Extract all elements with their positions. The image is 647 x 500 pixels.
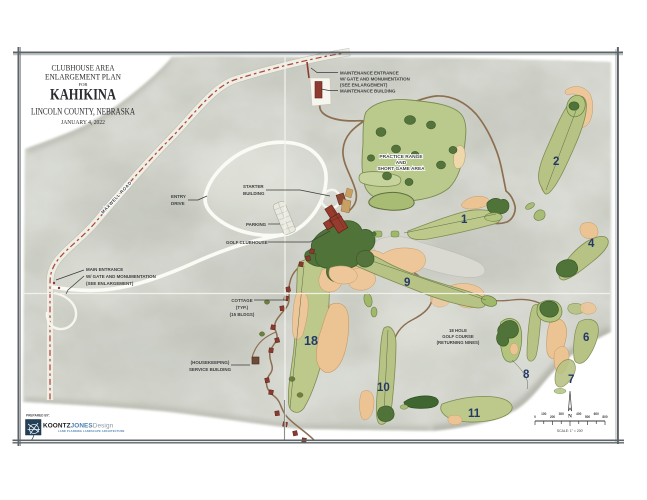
svg-text:400: 400 <box>576 412 582 416</box>
svg-text:500: 500 <box>585 415 591 419</box>
svg-text:N: N <box>568 414 572 420</box>
svg-text:MAINTENANCE BUILDING: MAINTENANCE BUILDING <box>340 89 396 94</box>
svg-text:MAIN ENTRANCE: MAIN ENTRANCE <box>86 267 123 272</box>
svg-text:(15 BLDGS): (15 BLDGS) <box>230 312 255 317</box>
svg-text:DRIVE: DRIVE <box>171 201 185 206</box>
svg-text:0: 0 <box>534 415 536 419</box>
svg-text:6: 6 <box>583 332 589 344</box>
svg-text:18 HOLE: 18 HOLE <box>449 328 467 333</box>
svg-text:SERVICE BUILDING: SERVICE BUILDING <box>189 367 232 372</box>
svg-text:PARKING: PARKING <box>246 222 267 227</box>
svg-text:(SEE ENLARGEMENT): (SEE ENLARGEMENT) <box>340 83 388 88</box>
svg-text:9: 9 <box>404 277 410 289</box>
svg-text:ENTRY: ENTRY <box>171 194 186 199</box>
svg-text:BUILDING: BUILDING <box>243 191 265 196</box>
svg-text:(HOUSEKEEPING): (HOUSEKEEPING) <box>191 360 230 365</box>
svg-text:KAHIKINA: KAHIKINA <box>50 87 117 104</box>
svg-text:600: 600 <box>594 412 600 416</box>
svg-text:7: 7 <box>568 374 574 386</box>
svg-text:(RETURNING NINES): (RETURNING NINES) <box>437 340 480 345</box>
svg-text:AND: AND <box>396 160 407 166</box>
svg-text:CLUBHOUSE AREA: CLUBHOUSE AREA <box>52 64 115 73</box>
svg-text:JANUARY 4, 2022: JANUARY 4, 2022 <box>61 120 105 126</box>
svg-text:11: 11 <box>468 408 481 420</box>
svg-text:18: 18 <box>304 334 318 348</box>
svg-text:(SEE ENLARGEMENT): (SEE ENLARGEMENT) <box>86 281 134 286</box>
svg-text:STARTER: STARTER <box>243 184 264 189</box>
svg-text:1: 1 <box>461 214 468 226</box>
svg-text:4: 4 <box>588 238 595 250</box>
svg-text:8: 8 <box>523 369 530 381</box>
svg-text:KOONTZJONESDesign: KOONTZJONESDesign <box>43 423 114 430</box>
svg-text:10: 10 <box>377 382 390 394</box>
svg-text:W/ GATE AND MONUMENTATION: W/ GATE AND MONUMENTATION <box>340 77 410 82</box>
svg-text:SCALE: 1" = 200': SCALE: 1" = 200' <box>557 429 584 433</box>
svg-text:GOLF CLUBHOUSE: GOLF CLUBHOUSE <box>226 240 268 245</box>
svg-text:100: 100 <box>541 412 547 416</box>
svg-text:200: 200 <box>550 415 556 419</box>
svg-text:LINCOLN COUNTY, NEBRASKA: LINCOLN COUNTY, NEBRASKA <box>31 107 135 117</box>
svg-text:LAND PLANNING LANDSCAPE ARCHIT: LAND PLANNING LANDSCAPE ARCHITECTURE <box>58 429 125 433</box>
svg-text:2: 2 <box>553 156 559 168</box>
svg-text:MAINTENANCE ENTRANCE: MAINTENANCE ENTRANCE <box>340 71 399 76</box>
svg-text:ENLARGEMENT PLAN: ENLARGEMENT PLAN <box>45 73 121 82</box>
svg-text:PREPARED BY:: PREPARED BY: <box>26 414 50 418</box>
svg-text:300: 300 <box>559 412 565 416</box>
svg-text:COTTAGE: COTTAGE <box>231 298 252 303</box>
svg-text:PRACTICE RANGE: PRACTICE RANGE <box>379 154 423 160</box>
svg-text:(TYP.): (TYP.) <box>236 305 249 310</box>
svg-text:GOLF COURSE: GOLF COURSE <box>442 334 474 339</box>
svg-text:800: 800 <box>602 415 608 419</box>
svg-text:SHORT GAME AREA: SHORT GAME AREA <box>377 166 425 172</box>
svg-text:W/ GATE AND MONUMENTATION: W/ GATE AND MONUMENTATION <box>86 274 156 279</box>
